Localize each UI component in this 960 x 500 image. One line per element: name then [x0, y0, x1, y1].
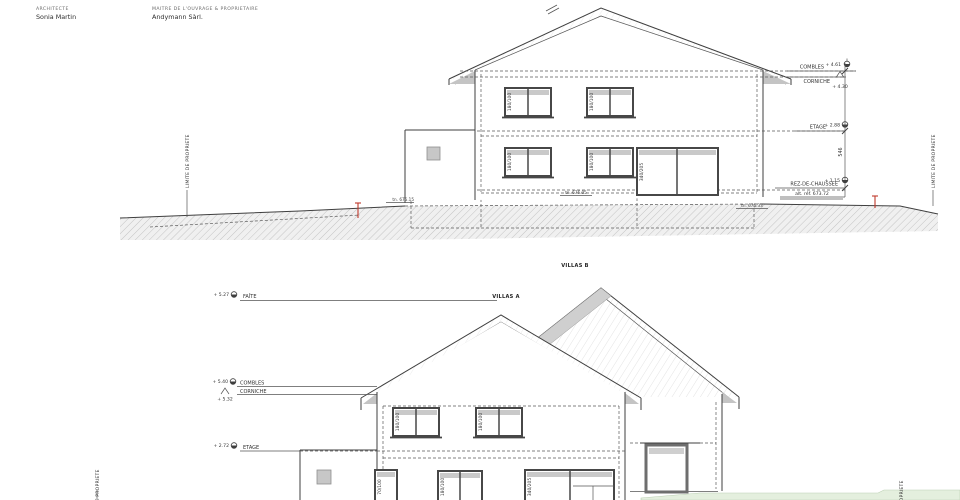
- annex-left-top: [405, 130, 475, 203]
- height-dimension: 546: [838, 147, 844, 156]
- window-size-label: 70/100: [377, 479, 383, 495]
- vent-box: [317, 470, 331, 484]
- property-limit-left-bottom: LIMITE DE PROPRIETE: [95, 469, 101, 500]
- architect-name: Sonia Martin: [36, 13, 76, 21]
- window-narrow: 70/100: [375, 470, 397, 500]
- property-limit-right-bottom: LIMITE DE PROPRIETE: [899, 480, 905, 500]
- property-limit-label: LIMITE DE PROPRIETE: [899, 480, 905, 500]
- villa-b-label: VILLAS B: [561, 263, 589, 269]
- owner-name: Andymann Sàrl.: [152, 13, 203, 21]
- bottom-elevation: VILLAS B VILLAS A: [95, 263, 960, 500]
- window-size-label: 340/205: [527, 478, 533, 496]
- faite-label: FAÎTE: [243, 293, 257, 300]
- level-symbol: [230, 379, 236, 385]
- elevation-drawing: ARCHITECTE Sonia Martin MAITRE DE L'OUVR…: [0, 0, 960, 500]
- owner-label: MAITRE DE L'OUVRAGE & PROPRIETAIRE: [152, 6, 258, 12]
- window-size-label: 180/100: [440, 478, 446, 496]
- corniche-value: + 4.30: [832, 84, 848, 90]
- property-limit-label: LIMITE DE PROPRIETE: [95, 469, 101, 500]
- window-size-label: 340/205: [639, 163, 645, 181]
- title-block: ARCHITECTE Sonia Martin MAITRE DE L'OUVR…: [36, 6, 258, 21]
- window-size-label: 180/100: [589, 93, 595, 111]
- corniche-label: CORNICHE: [240, 389, 267, 395]
- sliding-door: 340/205: [637, 148, 718, 195]
- tn-center: tn. 676.05: [565, 190, 587, 195]
- alt-ref: alt. réf. 673.72: [795, 190, 829, 197]
- window-size-label: 180/100: [507, 153, 513, 171]
- top-elevation: 180/100 180/100 180/100 180/100: [120, 5, 938, 240]
- etage-label: ETAGE: [243, 445, 259, 451]
- etage-value: + 2.72: [213, 443, 229, 449]
- window-size-label: 180/100: [589, 153, 595, 171]
- window: 180/100: [502, 148, 554, 178]
- window-size-label: 180/100: [507, 93, 513, 111]
- vent-box: [427, 147, 440, 160]
- level-annotations-top: COMBLES + 4.61 CORNICHE + 4.30 ETAGE + 2…: [775, 59, 856, 200]
- corniche-label: CORNICHE: [803, 79, 830, 85]
- architect-label: ARCHITECTE: [36, 6, 69, 12]
- corniche-value: + 5.32: [217, 397, 233, 403]
- property-limit-right: LIMITE DE PROPRIETE: [931, 134, 937, 206]
- property-limit-label: LIMITE DE PROPRIETE: [185, 134, 191, 188]
- window: 180/100: [438, 471, 482, 500]
- combles-value: + 4.61: [825, 62, 841, 68]
- level-symbol: [231, 292, 237, 298]
- window-size-label: 180/100: [478, 413, 484, 431]
- window: 180/100: [390, 408, 442, 438]
- combles-label: COMBLES: [240, 381, 264, 387]
- tn-left: tn. 675.15: [392, 197, 414, 202]
- window: 180/100: [473, 408, 525, 438]
- level-symbol: [231, 443, 237, 449]
- etage-value: + 2.88: [824, 123, 840, 129]
- sliding-door: 340/205: [525, 470, 614, 500]
- annex-left-bottom: [300, 450, 377, 500]
- combles-value: + 5.40: [212, 379, 228, 385]
- terrain-top: [120, 204, 938, 240]
- window-size-label: 180/100: [395, 413, 401, 431]
- property-limit-label: LIMITE DE PROPRIETE: [931, 134, 937, 188]
- window: 180/100: [502, 88, 554, 118]
- combles-label: COMBLES: [800, 65, 824, 71]
- window: 180/100: [584, 88, 636, 118]
- faite-value: + 5.27: [213, 292, 229, 298]
- corniche-symbol: [221, 388, 229, 394]
- ridge-detail: [546, 5, 559, 14]
- corniche-symbol: [836, 72, 844, 78]
- villa-a-label: VILLAS A: [492, 294, 520, 300]
- property-limit-left: LIMITE DE PROPRIETE: [185, 134, 191, 217]
- tn-right: tn. 675.33: [741, 203, 763, 208]
- rez-value: + 1.15: [824, 178, 840, 184]
- architectural-plan-sheet: ARCHITECTE Sonia Martin MAITRE DE L'OUVR…: [0, 0, 960, 500]
- window: 180/100: [584, 148, 636, 178]
